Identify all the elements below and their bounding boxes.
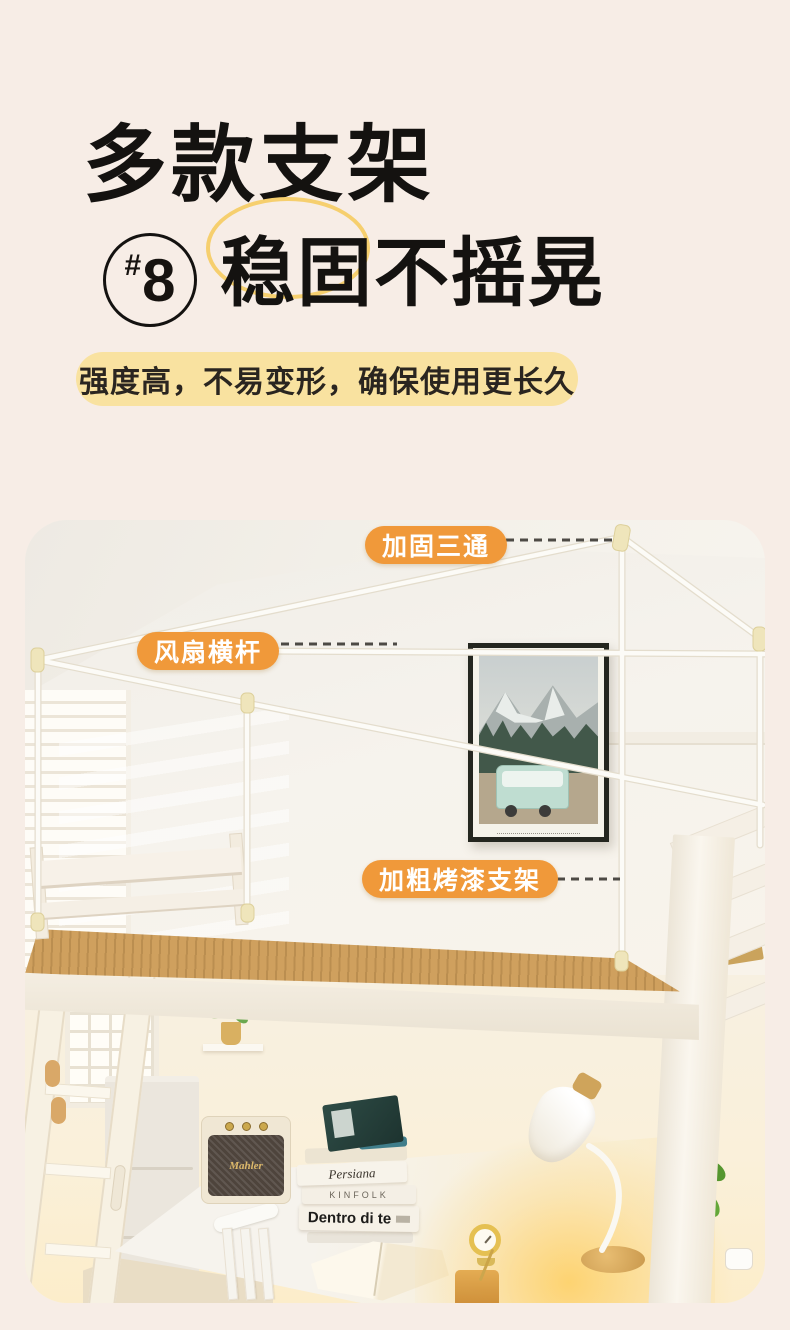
- number-badge: # 8: [103, 233, 197, 327]
- net-frame-poles: [38, 537, 765, 968]
- callout-thick-painted-bracket: 加粗烤漆支架: [362, 860, 558, 898]
- callout-text: 加粗烤漆支架: [379, 861, 541, 897]
- tagline-text: 强度高，不易变形，确保使用更长久: [79, 357, 575, 401]
- corner-connectors: [31, 524, 765, 971]
- product-photo: Mahler Dentro di te KINFOLK Persiana: [25, 520, 765, 1303]
- callout-fan-crossbar: 风扇横杆: [137, 632, 279, 670]
- badge-number: 8: [142, 246, 175, 315]
- tagline-pill: 强度高，不易变形，确保使用更长久: [76, 352, 578, 406]
- callout-dash-lines: [267, 540, 620, 879]
- callout-text: 风扇横杆: [154, 633, 262, 669]
- pole-shadows: [38, 537, 765, 968]
- badge-hash: #: [124, 249, 141, 283]
- net-frame-graphic: [25, 520, 765, 1303]
- callout-reinforced-tee: 加固三通: [365, 526, 507, 564]
- callout-text: 加固三通: [382, 527, 490, 563]
- page-subtitle: 稳固不摇晃: [220, 212, 605, 321]
- product-detail-page: 多款支架 # 8 稳固不摇晃 强度高，不易变形，确保使用更长久: [0, 0, 790, 1330]
- lamp-arm: [589, 1146, 619, 1250]
